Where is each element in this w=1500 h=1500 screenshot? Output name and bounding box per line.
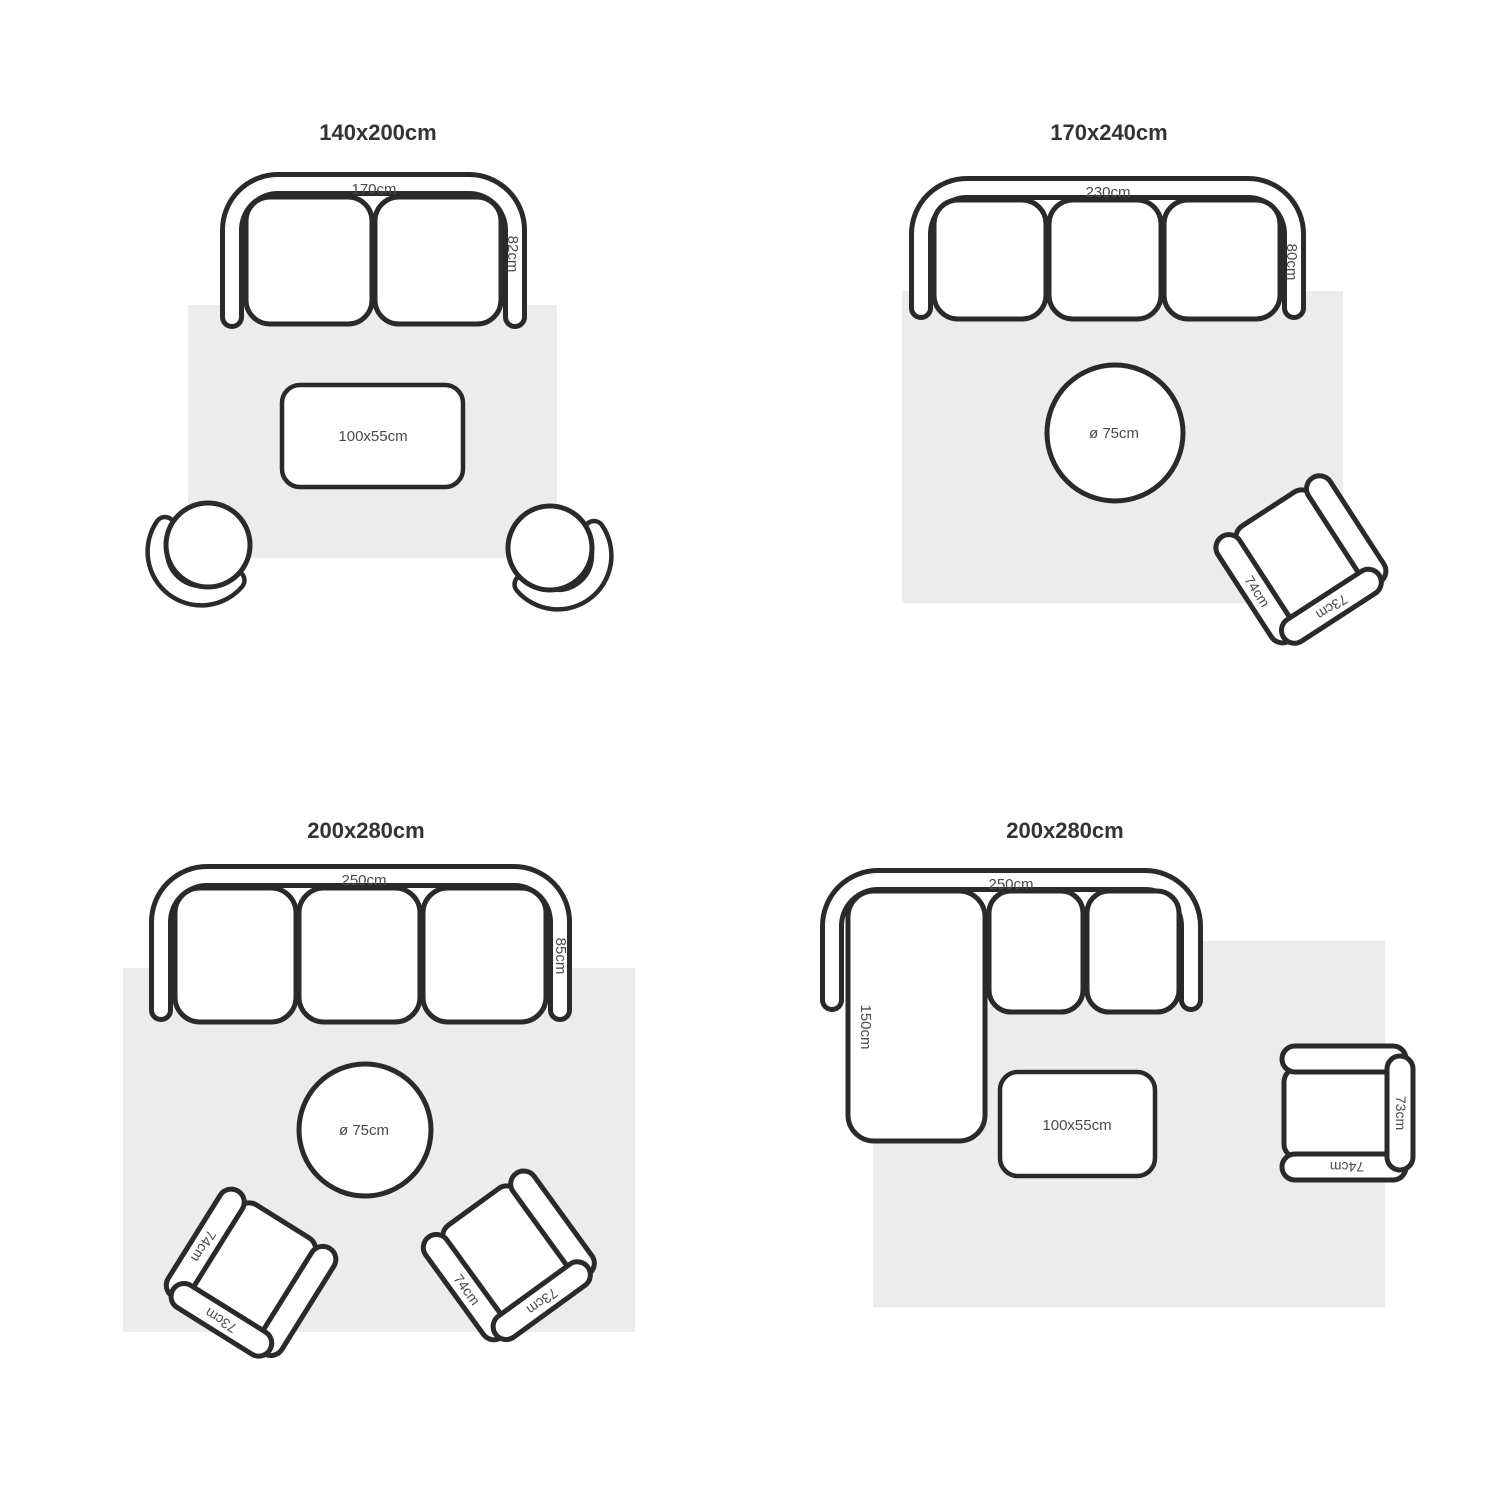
sofa-cushion [1164, 200, 1280, 319]
armchair-back-label: 73cm [1393, 1096, 1409, 1130]
sofa-width-label: 250cm [988, 876, 1033, 893]
tub-chair-right [508, 506, 602, 600]
sofa-depth-label: 82cm [504, 236, 521, 273]
table-size-label: 100x55cm [338, 428, 407, 445]
sofa-cushion [1049, 200, 1161, 319]
round-table: ø 75cm [1047, 365, 1183, 501]
tub-chair-left [157, 503, 250, 596]
tub-chair-seat [508, 506, 592, 590]
armchair-side-label: 74cm [1330, 1159, 1364, 1175]
coffee-table: 100x55cm [282, 385, 463, 487]
sofa-cushion [934, 200, 1046, 319]
sofa-cushion [299, 888, 420, 1022]
sofa-depth-label: 85cm [552, 938, 569, 975]
sofa-cushion [1087, 891, 1179, 1012]
sofa-width-label: 170cm [351, 181, 396, 198]
armchair: 74cm 73cm [1282, 1046, 1413, 1180]
sofa-width-label: 230cm [1085, 184, 1130, 201]
quadrant-title: 200x280cm [1006, 818, 1123, 843]
table-size-label: ø 75cm [1089, 425, 1139, 442]
sofa-chaise-label: 150cm [857, 1004, 874, 1049]
sofa-width-label: 250cm [341, 872, 386, 889]
quadrant-bottom-left: 200x280cm 250cm 85cm ø 75cm 74cm 73cm [123, 818, 635, 1366]
armchair-seat [1284, 1068, 1396, 1158]
sofa-cushion [175, 888, 296, 1022]
coffee-table: 100x55cm [1000, 1072, 1155, 1176]
sofa-cushion [375, 197, 501, 324]
rug-size-guide: 140x200cm 170cm 82cm 100x55cm [0, 0, 1500, 1500]
sofa-depth-label: 80cm [1283, 244, 1300, 281]
table-size-label: 100x55cm [1042, 1117, 1111, 1134]
sofa-3-seat: 250cm 85cm [161, 872, 569, 1022]
rug-size-guide-diagram: 140x200cm 170cm 82cm 100x55cm [0, 0, 1500, 1500]
sofa-cushion [423, 888, 546, 1022]
quadrant-bottom-right: 200x280cm 250cm 150cm 100x55cm 74cm 73cm [832, 818, 1413, 1307]
sofa-cushion [989, 891, 1083, 1012]
tub-chair-seat [166, 503, 250, 587]
round-table: ø 75cm [299, 1064, 431, 1196]
quadrant-title: 140x200cm [319, 120, 436, 145]
quadrant-title: 200x280cm [307, 818, 424, 843]
table-size-label: ø 75cm [339, 1122, 389, 1139]
quadrant-top-left: 140x200cm 170cm 82cm 100x55cm [157, 120, 601, 600]
sofa-2-seat: 170cm 82cm [232, 181, 521, 324]
quadrant-title: 170x240cm [1050, 120, 1167, 145]
quadrant-top-right: 170x240cm 230cm 80cm ø 75cm 74cm 73cm [902, 120, 1395, 654]
sofa-3-seat: 230cm 80cm [921, 184, 1300, 319]
sofa-cushion [246, 197, 372, 324]
